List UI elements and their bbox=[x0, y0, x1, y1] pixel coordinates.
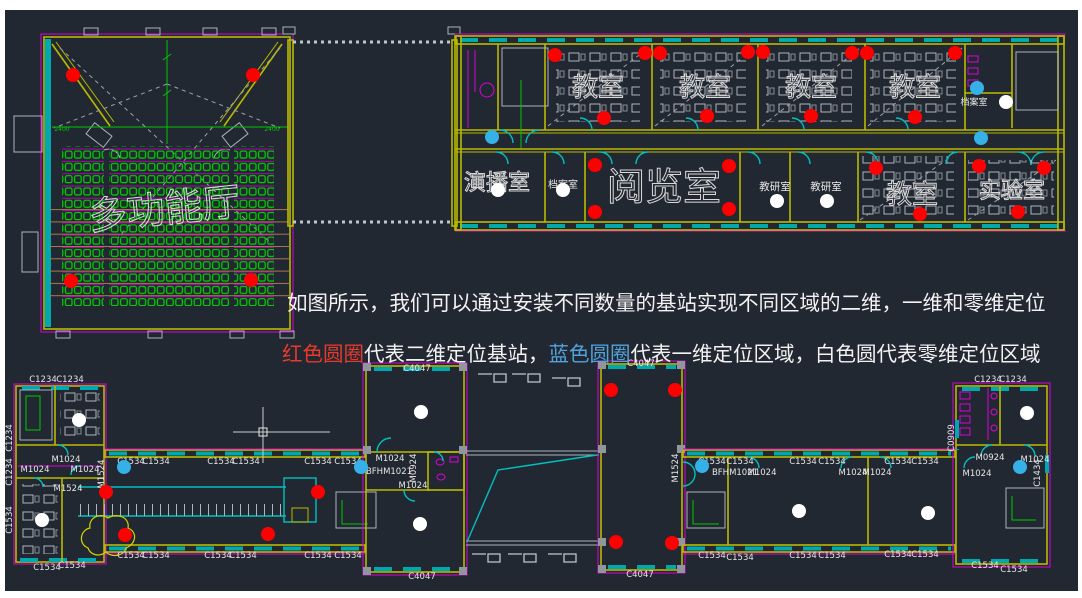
room-label: 阅览室 bbox=[607, 165, 721, 209]
tag-label: C1534 bbox=[334, 551, 362, 561]
tag-label: C1234 bbox=[999, 375, 1027, 385]
tag-label: C1534 bbox=[304, 551, 332, 561]
tag-label: C1534 bbox=[884, 457, 912, 467]
red-marker bbox=[948, 46, 962, 60]
white-marker bbox=[921, 506, 935, 520]
white-marker bbox=[820, 194, 834, 208]
tag-label: M1524 bbox=[54, 484, 83, 494]
red-marker bbox=[66, 68, 80, 82]
tag-label: C1534 bbox=[698, 551, 726, 561]
room-label: 教室 bbox=[785, 73, 837, 103]
white-marker bbox=[413, 517, 427, 531]
red-marker bbox=[244, 273, 258, 287]
tag-label: C1534 bbox=[207, 457, 235, 467]
blue-marker bbox=[117, 460, 131, 474]
tag-label: C1534 bbox=[229, 551, 257, 561]
legend-line-1: 如图所示，我们可以通过安装不同数量的基站实现不同区域的二维，一维和零维定位 bbox=[287, 286, 1046, 316]
red-marker bbox=[653, 46, 667, 60]
tag-label: C1534 bbox=[1000, 565, 1028, 575]
tag-label: C1534 bbox=[971, 561, 999, 571]
tag-label: M1024 bbox=[71, 465, 100, 475]
tag-label: C1534 bbox=[232, 457, 260, 467]
tag-label: C1234 bbox=[29, 375, 57, 385]
tag-label: C1234 bbox=[974, 375, 1002, 385]
legend-line-2: 红色圆圈代表二维定位基站，蓝色圆圈代表一维定位区域，白色圆代表零维定位区域 bbox=[282, 337, 1041, 367]
legend-blue-circle-label: 蓝色圆圈 bbox=[549, 342, 631, 366]
white-marker bbox=[1020, 406, 1034, 420]
red-marker bbox=[722, 159, 736, 173]
tag-label: C0909 bbox=[947, 424, 957, 452]
room-label: 教室 bbox=[679, 73, 731, 103]
blue-marker bbox=[974, 131, 988, 145]
tag-label: C1234 bbox=[5, 458, 15, 486]
red-marker bbox=[597, 111, 611, 125]
red-marker bbox=[845, 46, 859, 60]
tag-label: C1534 bbox=[789, 551, 817, 561]
white-marker bbox=[72, 413, 86, 427]
tag-label: C1534 bbox=[884, 550, 912, 560]
tag-label: C1434 bbox=[1033, 459, 1043, 487]
red-marker bbox=[261, 527, 275, 541]
red-marker bbox=[756, 45, 770, 59]
legend-1d-0d-text: 代表一维定位区域，白色圆代表零维定位区域 bbox=[631, 342, 1041, 366]
tag-label: M1024 bbox=[376, 454, 405, 464]
tag-label: C1534 bbox=[117, 551, 145, 561]
blue-marker bbox=[695, 459, 709, 473]
red-marker bbox=[311, 485, 325, 499]
tag-label: C1534 bbox=[204, 551, 232, 561]
blue-marker bbox=[354, 460, 368, 474]
room-label: 实验室 bbox=[979, 179, 1045, 204]
white-marker bbox=[770, 194, 784, 208]
blue-marker bbox=[485, 130, 499, 144]
red-marker bbox=[668, 383, 682, 397]
tag-label: C1534 bbox=[58, 561, 86, 571]
room-label: 档案室 bbox=[960, 96, 987, 108]
red-marker bbox=[722, 202, 736, 216]
red-marker bbox=[741, 45, 755, 59]
tag-label: C1534 bbox=[789, 457, 817, 467]
red-marker bbox=[64, 274, 78, 288]
legend-red-circle-label: 红色圆圈 bbox=[282, 342, 364, 366]
tag-label: C1534 bbox=[818, 457, 846, 467]
tag-label: C1234 bbox=[56, 375, 84, 385]
red-marker bbox=[588, 205, 602, 219]
white-marker bbox=[999, 95, 1013, 109]
red-marker bbox=[548, 48, 562, 62]
tag-label: BFHM1021 bbox=[712, 468, 758, 478]
tag-label: C1534 bbox=[911, 550, 939, 560]
tag-label: M1524 bbox=[671, 454, 681, 483]
tag-label: C1534 bbox=[304, 457, 332, 467]
legend-2d-text: 代表二维定位基站， bbox=[364, 342, 549, 366]
room-label: 教研室 bbox=[810, 180, 842, 193]
red-marker bbox=[860, 46, 874, 60]
tag-label: C1534 bbox=[726, 457, 754, 467]
tag-label: C1234 bbox=[5, 424, 15, 452]
tag-label: M1024 bbox=[52, 455, 81, 465]
room-label: 教室 bbox=[886, 180, 938, 210]
red-marker bbox=[609, 535, 623, 549]
tag-label: C1534 bbox=[142, 457, 170, 467]
red-marker bbox=[913, 207, 927, 221]
room-label: 教室 bbox=[572, 73, 624, 103]
red-marker bbox=[804, 109, 818, 123]
red-marker bbox=[604, 383, 618, 397]
tag-label: M1024 bbox=[21, 465, 50, 475]
tag-label: C1534 bbox=[33, 563, 61, 573]
red-marker bbox=[118, 528, 132, 542]
red-marker bbox=[638, 46, 652, 60]
tag-label: C1534 bbox=[818, 551, 846, 561]
tag-label: C4047 bbox=[626, 570, 654, 580]
red-marker bbox=[908, 110, 922, 124]
white-marker bbox=[792, 504, 806, 518]
red-marker bbox=[99, 485, 113, 499]
red-marker bbox=[665, 536, 679, 550]
tag-label: 2400 bbox=[264, 126, 279, 133]
tag-label: 2400 bbox=[54, 126, 69, 133]
white-marker bbox=[414, 405, 428, 419]
white-marker bbox=[491, 183, 505, 197]
red-marker bbox=[1011, 205, 1025, 219]
tag-label: M1024 bbox=[863, 468, 892, 478]
tag-label: C1534 bbox=[5, 506, 15, 534]
tag-label: C1534 bbox=[142, 551, 170, 561]
red-marker bbox=[700, 109, 714, 123]
tag-label: C1534 bbox=[911, 457, 939, 467]
room-label: 教室 bbox=[889, 73, 941, 103]
red-marker bbox=[869, 161, 883, 175]
room-label: 教研室 bbox=[759, 180, 791, 193]
red-marker bbox=[972, 159, 986, 173]
blue-marker bbox=[970, 81, 984, 95]
tag-label: M1524 bbox=[97, 460, 107, 489]
cad-application-window: 多功能厅教室教室教室教室教室演播室档案室阅览室教研室教研室实验室档案室 C123… bbox=[0, 0, 1082, 598]
tag-label: M0924 bbox=[976, 453, 1005, 463]
tag-label: C4047 bbox=[408, 572, 436, 582]
tag-label: C1534 bbox=[726, 553, 754, 563]
blue-marker bbox=[1013, 460, 1027, 474]
white-marker bbox=[556, 183, 570, 197]
red-marker bbox=[1037, 161, 1051, 175]
red-marker bbox=[588, 158, 602, 172]
tag-label: BFHM1021 bbox=[366, 467, 412, 477]
red-marker bbox=[246, 68, 260, 82]
tag-label: M1024 bbox=[963, 469, 992, 479]
white-marker bbox=[35, 513, 49, 527]
